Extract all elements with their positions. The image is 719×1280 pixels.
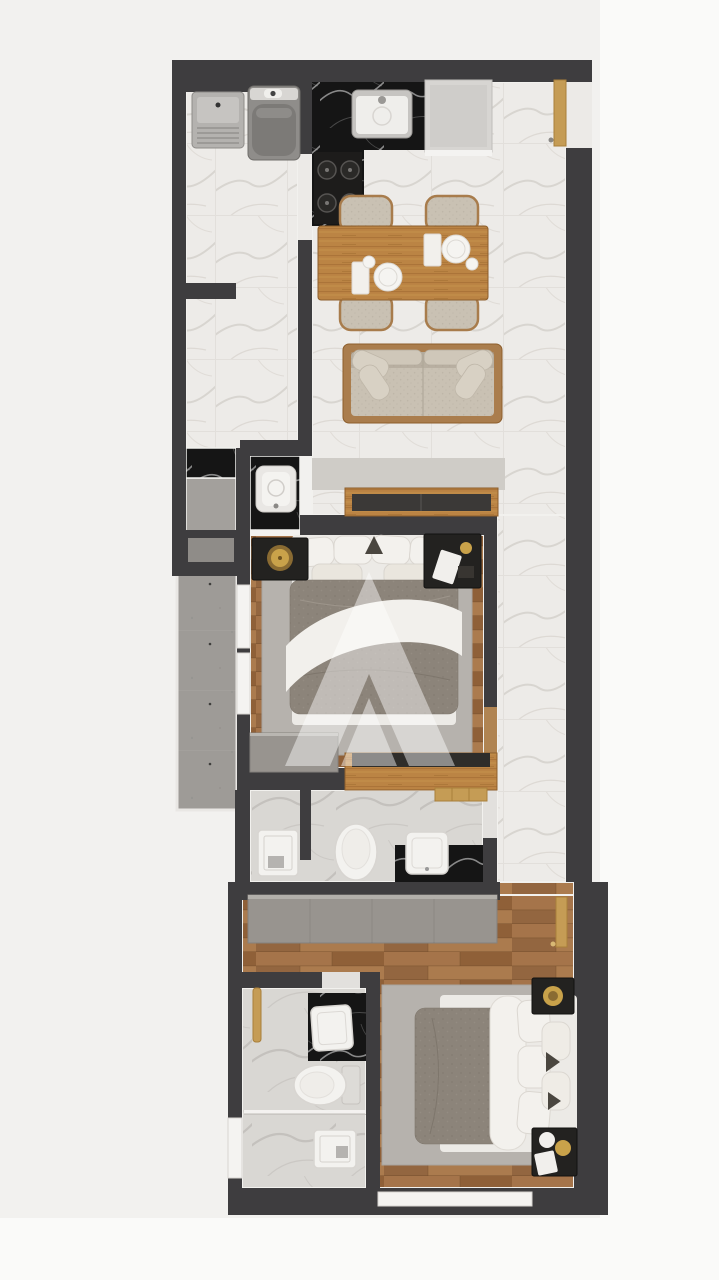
bedroom2-wardrobe (248, 895, 497, 943)
tv-console (345, 488, 498, 516)
hallway-floor (497, 515, 566, 882)
entry-doorway (566, 82, 592, 148)
balcony-shaft-floor (177, 565, 237, 810)
laundry-tub (192, 92, 244, 148)
bathroom1-shower-tray (258, 830, 298, 876)
nightstand-bottom (532, 1128, 577, 1176)
background-bottom-margin (0, 1218, 719, 1280)
gold-towel-bar (253, 988, 261, 1042)
glass-partition (244, 1110, 366, 1115)
nightstand-left (252, 538, 308, 580)
sofa (343, 344, 502, 423)
laundry-doorway (298, 154, 312, 240)
closet-shelf-black-marble (186, 448, 236, 478)
bedroom1-window-1 (237, 585, 250, 648)
bathroom2-vanity (308, 993, 366, 1061)
bedroom2-window (378, 1192, 532, 1206)
bathroom2-window (228, 1118, 242, 1178)
bathroom1-toilet (335, 824, 377, 880)
nightstand-right (424, 534, 481, 588)
tv-zone (312, 458, 505, 490)
refrigerator (425, 80, 492, 156)
bedroom2-entry-floor (497, 882, 574, 896)
bathroom2-toilet (294, 1065, 360, 1105)
bathroom2-doorway (322, 972, 360, 988)
washbasin-nook (256, 466, 296, 512)
nightstand-top (532, 978, 574, 1014)
bathroom2-shower-tray (314, 1130, 356, 1168)
background-right-margin (600, 0, 719, 1280)
bedroom1-window-2 (237, 653, 250, 714)
floor-plan-stage (0, 0, 719, 1280)
floor-plan-svg (0, 0, 719, 1280)
washing-machine (248, 86, 300, 160)
towel-shelf (435, 788, 487, 801)
kitchen-sink (352, 90, 412, 138)
